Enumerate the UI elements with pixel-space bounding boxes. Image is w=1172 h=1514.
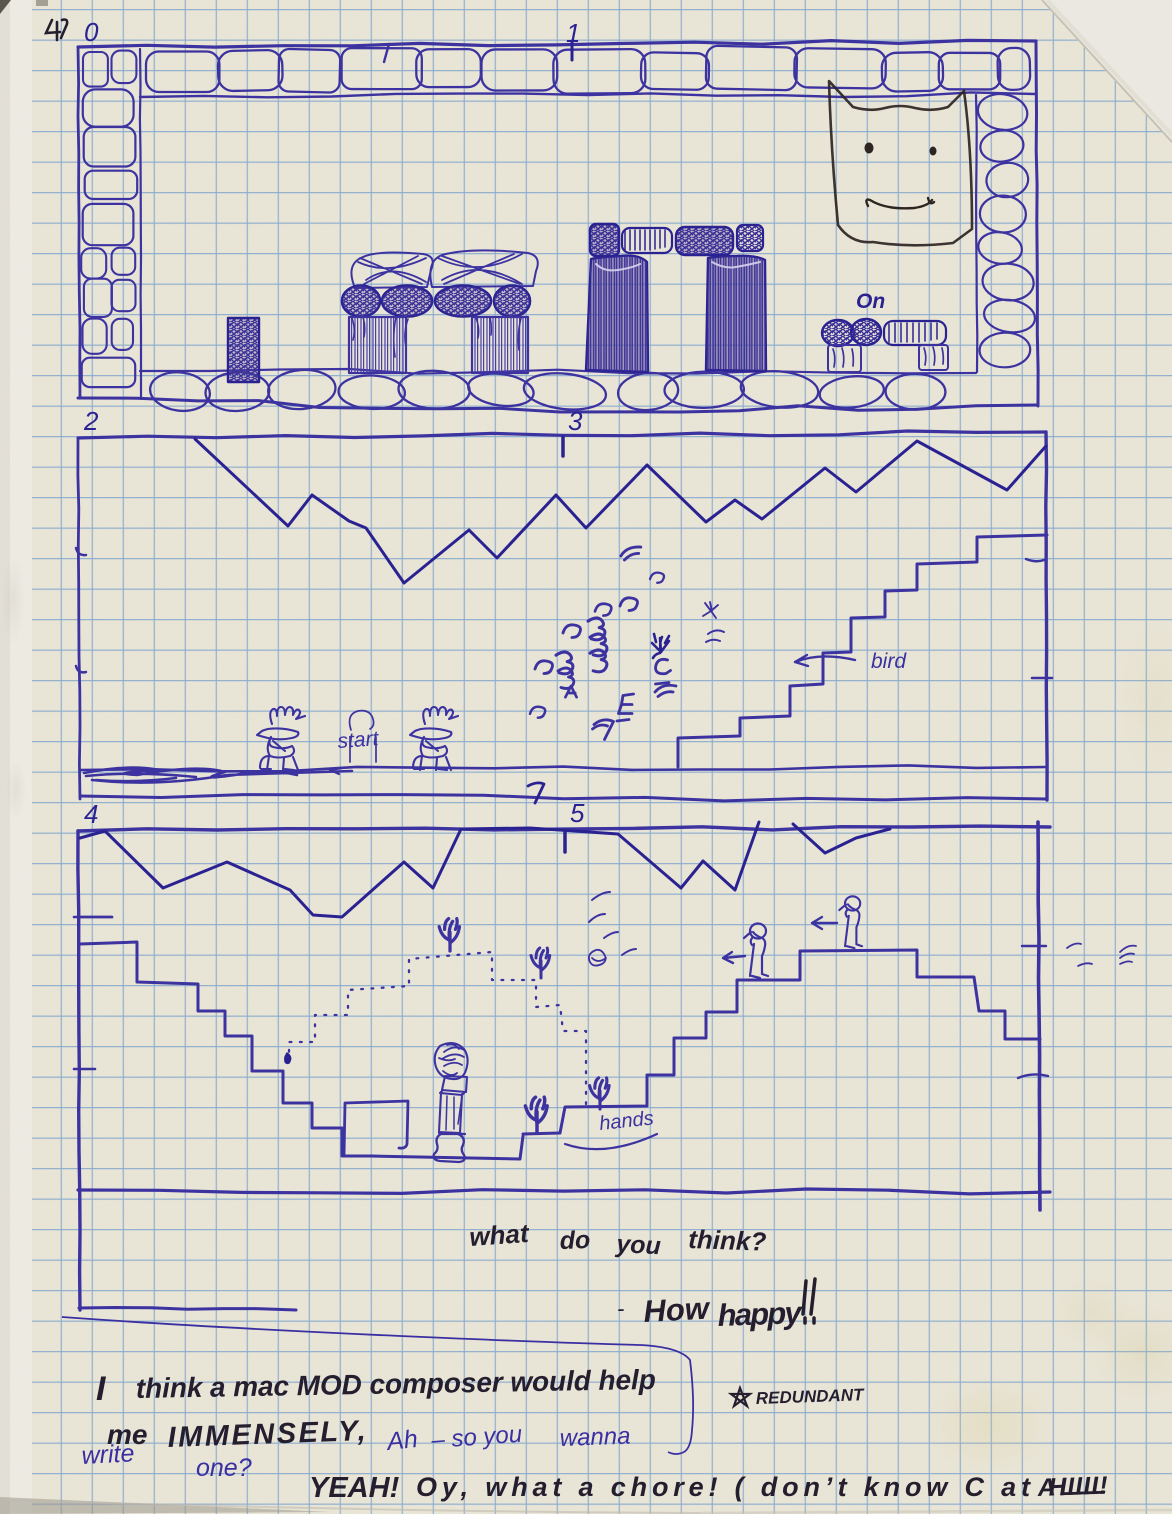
svg-text:do: do xyxy=(559,1226,591,1255)
svg-text:AHLLLLL!: AHLLLLL! xyxy=(1036,1472,1108,1502)
svg-text:REDUNDANT: REDUNDANT xyxy=(755,1385,865,1408)
svg-text:happy: happy xyxy=(717,1295,804,1333)
svg-text:bird: bird xyxy=(871,650,907,673)
svg-text:On: On xyxy=(856,290,885,313)
svg-text:write: write xyxy=(81,1439,135,1470)
svg-text:4: 4 xyxy=(84,799,98,829)
svg-text:wanna: wanna xyxy=(559,1423,631,1452)
svg-text:Ah: Ah xyxy=(384,1425,419,1456)
svg-text:How: How xyxy=(643,1291,712,1329)
svg-text:what: what xyxy=(468,1218,531,1252)
svg-text:0: 0 xyxy=(84,17,99,47)
svg-text:YEAH!: YEAH! xyxy=(309,1472,400,1504)
svg-text:start: start xyxy=(337,727,381,753)
svg-text:-: - xyxy=(617,1296,624,1321)
svg-text:think?: think? xyxy=(688,1224,767,1257)
svg-text:you: you xyxy=(614,1230,662,1260)
svg-text:5: 5 xyxy=(570,798,585,828)
svg-text:2: 2 xyxy=(83,406,99,436)
svg-text:one?: one? xyxy=(196,1454,252,1482)
svg-text:I: I xyxy=(96,1370,107,1408)
svg-text:3: 3 xyxy=(568,406,583,436)
